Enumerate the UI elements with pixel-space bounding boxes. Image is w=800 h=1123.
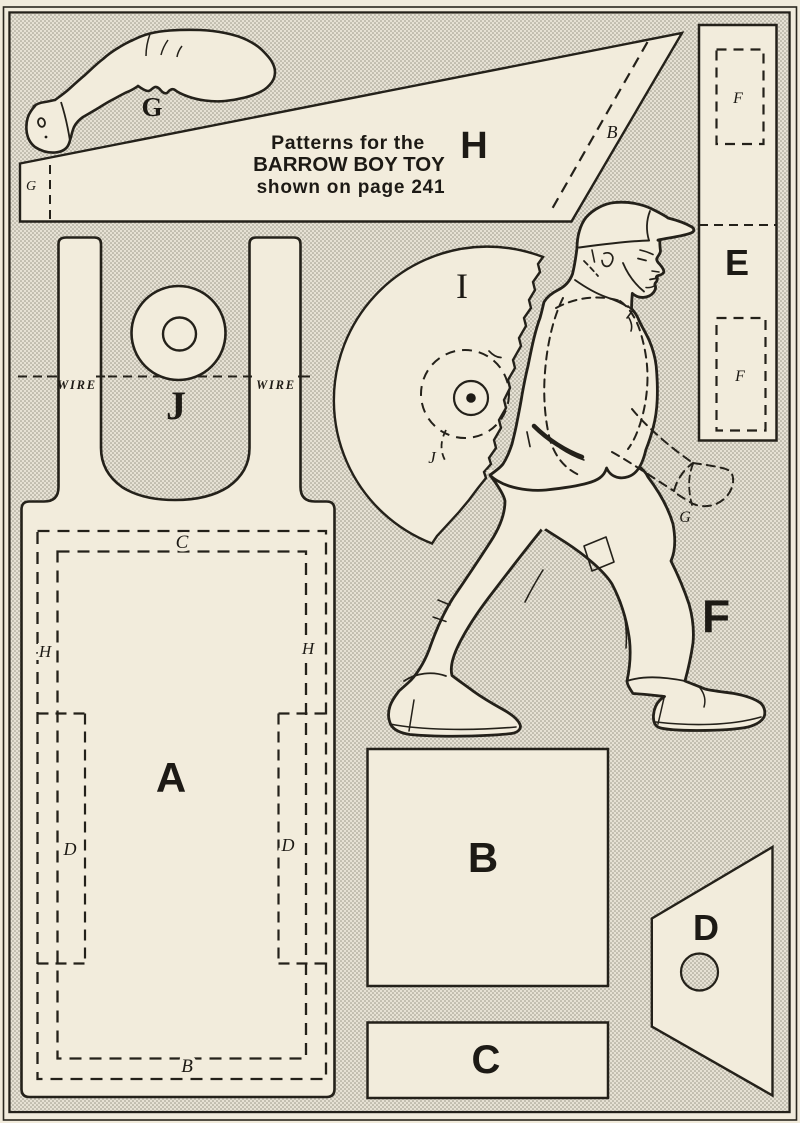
svg-text:B: B xyxy=(181,1056,193,1077)
svg-text:G: G xyxy=(141,92,162,122)
svg-text:H: H xyxy=(38,642,53,661)
svg-text:J: J xyxy=(166,383,186,428)
svg-text:H: H xyxy=(301,639,316,658)
svg-text:B: B xyxy=(607,122,618,142)
svg-text:G: G xyxy=(26,179,36,194)
svg-text:E: E xyxy=(725,242,749,283)
svg-text:C: C xyxy=(472,1038,501,1082)
svg-text:WIRE: WIRE xyxy=(57,378,97,392)
svg-text:D: D xyxy=(693,907,719,948)
svg-text:D: D xyxy=(281,835,295,855)
svg-text:F: F xyxy=(732,90,743,107)
svg-text:H: H xyxy=(460,125,487,167)
svg-text:B: B xyxy=(468,834,498,881)
svg-text:D: D xyxy=(63,839,77,859)
svg-text:F: F xyxy=(702,590,730,642)
svg-text:I: I xyxy=(456,266,468,306)
svg-text:Patterns for the: Patterns for the xyxy=(271,132,425,154)
svg-text:F: F xyxy=(734,368,745,385)
svg-text:shown on page 241: shown on page 241 xyxy=(257,177,446,198)
svg-text:C: C xyxy=(176,532,189,553)
svg-text:A: A xyxy=(156,754,186,801)
svg-text:WIRE: WIRE xyxy=(256,378,296,392)
svg-text:BARROW BOY TOY: BARROW BOY TOY xyxy=(253,153,445,176)
svg-text:G: G xyxy=(679,509,691,526)
